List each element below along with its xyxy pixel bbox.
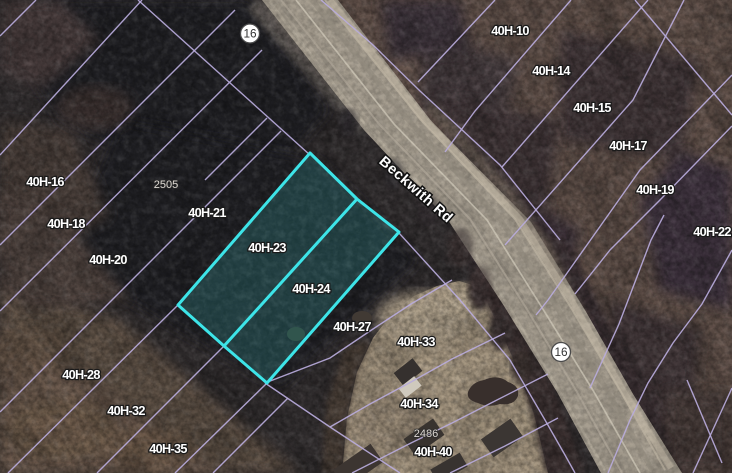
svg-text:40H-20: 40H-20 (89, 253, 127, 267)
svg-text:40H-14: 40H-14 (532, 64, 570, 78)
svg-text:40H-18: 40H-18 (47, 217, 85, 231)
svg-text:40H-19: 40H-19 (636, 183, 674, 197)
svg-text:2486: 2486 (414, 428, 438, 440)
svg-text:16: 16 (243, 27, 257, 41)
svg-text:40H-24: 40H-24 (292, 282, 330, 296)
svg-text:40H-34: 40H-34 (400, 397, 438, 411)
svg-text:40H-23: 40H-23 (248, 241, 286, 255)
svg-text:40H-17: 40H-17 (609, 139, 647, 153)
svg-text:40H-15: 40H-15 (573, 101, 611, 115)
svg-text:40H-40: 40H-40 (414, 445, 452, 459)
svg-text:40H-35: 40H-35 (149, 442, 187, 456)
svg-text:40H-22: 40H-22 (693, 225, 731, 239)
svg-text:40H-32: 40H-32 (107, 404, 145, 418)
svg-text:40H-33: 40H-33 (397, 335, 435, 349)
svg-text:40H-27: 40H-27 (333, 320, 371, 334)
svg-text:40H-16: 40H-16 (26, 175, 64, 189)
svg-text:40H-21: 40H-21 (188, 206, 226, 220)
svg-text:2505: 2505 (154, 179, 178, 191)
svg-text:40H-28: 40H-28 (62, 368, 100, 382)
svg-text:40H-10: 40H-10 (491, 24, 529, 38)
svg-text:16: 16 (554, 345, 568, 359)
